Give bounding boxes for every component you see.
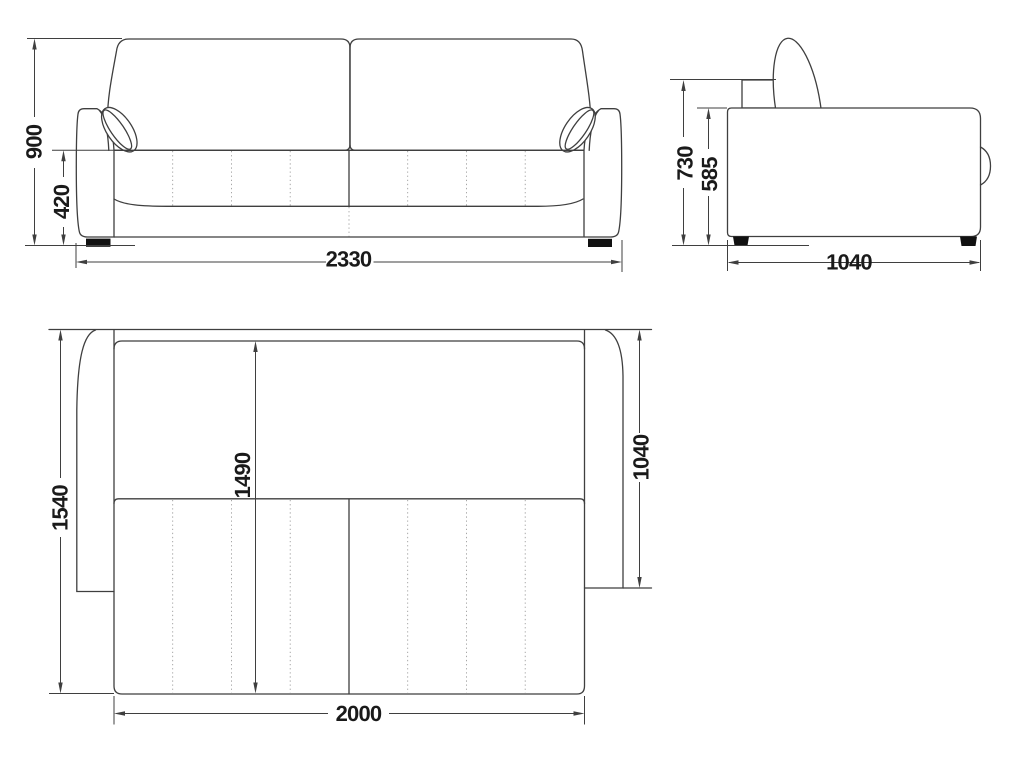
svg-text:1540: 1540: [48, 485, 73, 531]
svg-text:420: 420: [49, 184, 74, 219]
svg-text:1490: 1490: [230, 452, 255, 498]
svg-text:730: 730: [673, 146, 698, 181]
svg-text:1040: 1040: [629, 434, 654, 480]
svg-text:1040: 1040: [826, 250, 872, 275]
svg-text:585: 585: [697, 157, 722, 192]
svg-text:2000: 2000: [336, 701, 382, 726]
svg-text:900: 900: [22, 124, 47, 159]
svg-text:2330: 2330: [326, 247, 372, 272]
